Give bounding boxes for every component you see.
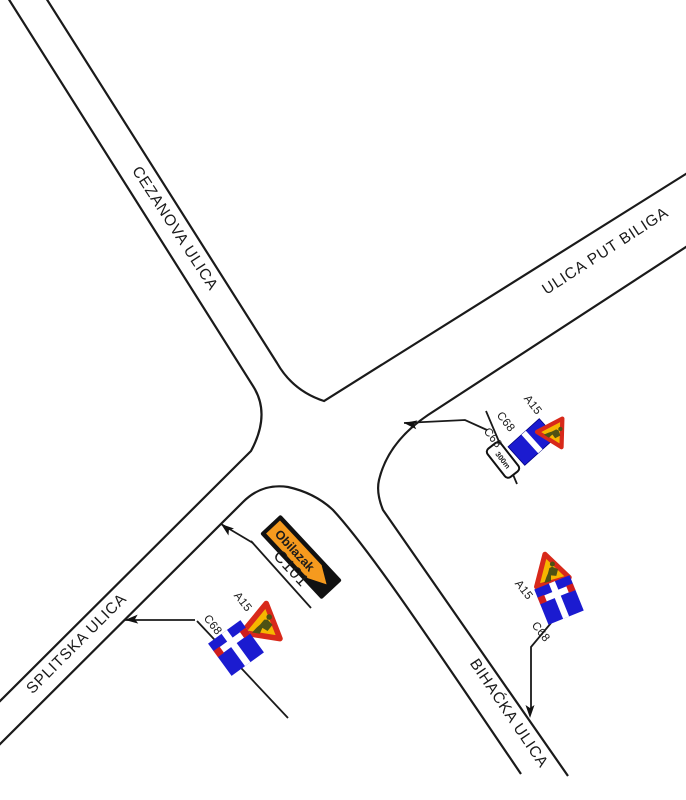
sign-code-label: A15	[512, 578, 535, 602]
road-edge-cezanova-splitska	[0, 0, 262, 704]
road-edge-cezanova-putbiliga	[46, 0, 686, 401]
leader-arrow-icon	[218, 520, 234, 535]
street-name-splitska: SPLITSKA ULICA	[23, 590, 130, 697]
street-name-put-biliga: ULICA PUT BILIGA	[539, 204, 671, 298]
street-name-cezanova: CEZANOVA ULICA	[128, 163, 221, 293]
assembly-splitska: A15 C68	[201, 590, 285, 676]
assembly-put-biliga: 300m A15 C68 C68	[481, 393, 575, 479]
sign-code-label: A15	[231, 590, 254, 614]
road-edge-putbiliga-bihacka	[378, 245, 686, 776]
assembly-bihacka: A15 C68	[512, 550, 584, 645]
plan-drawing: Obilazak C101 300m A15 C68 C68 A15 C68 A…	[0, 0, 686, 800]
sign-code-label: C68	[494, 410, 517, 435]
sign-code-label: C68	[201, 613, 224, 638]
signalization-plan-canvas: Obilazak C101 300m A15 C68 C68 A15 C68 A…	[0, 0, 686, 800]
sign-code-label: A15	[521, 393, 544, 417]
